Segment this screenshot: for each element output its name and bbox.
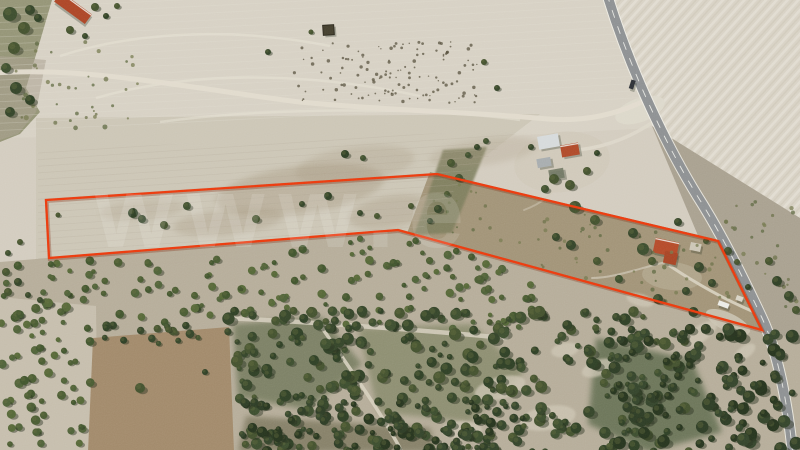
photo-grain-overlay [0, 0, 800, 450]
screenshot: www.e [0, 0, 800, 450]
aerial-photo: www.e [0, 0, 800, 450]
